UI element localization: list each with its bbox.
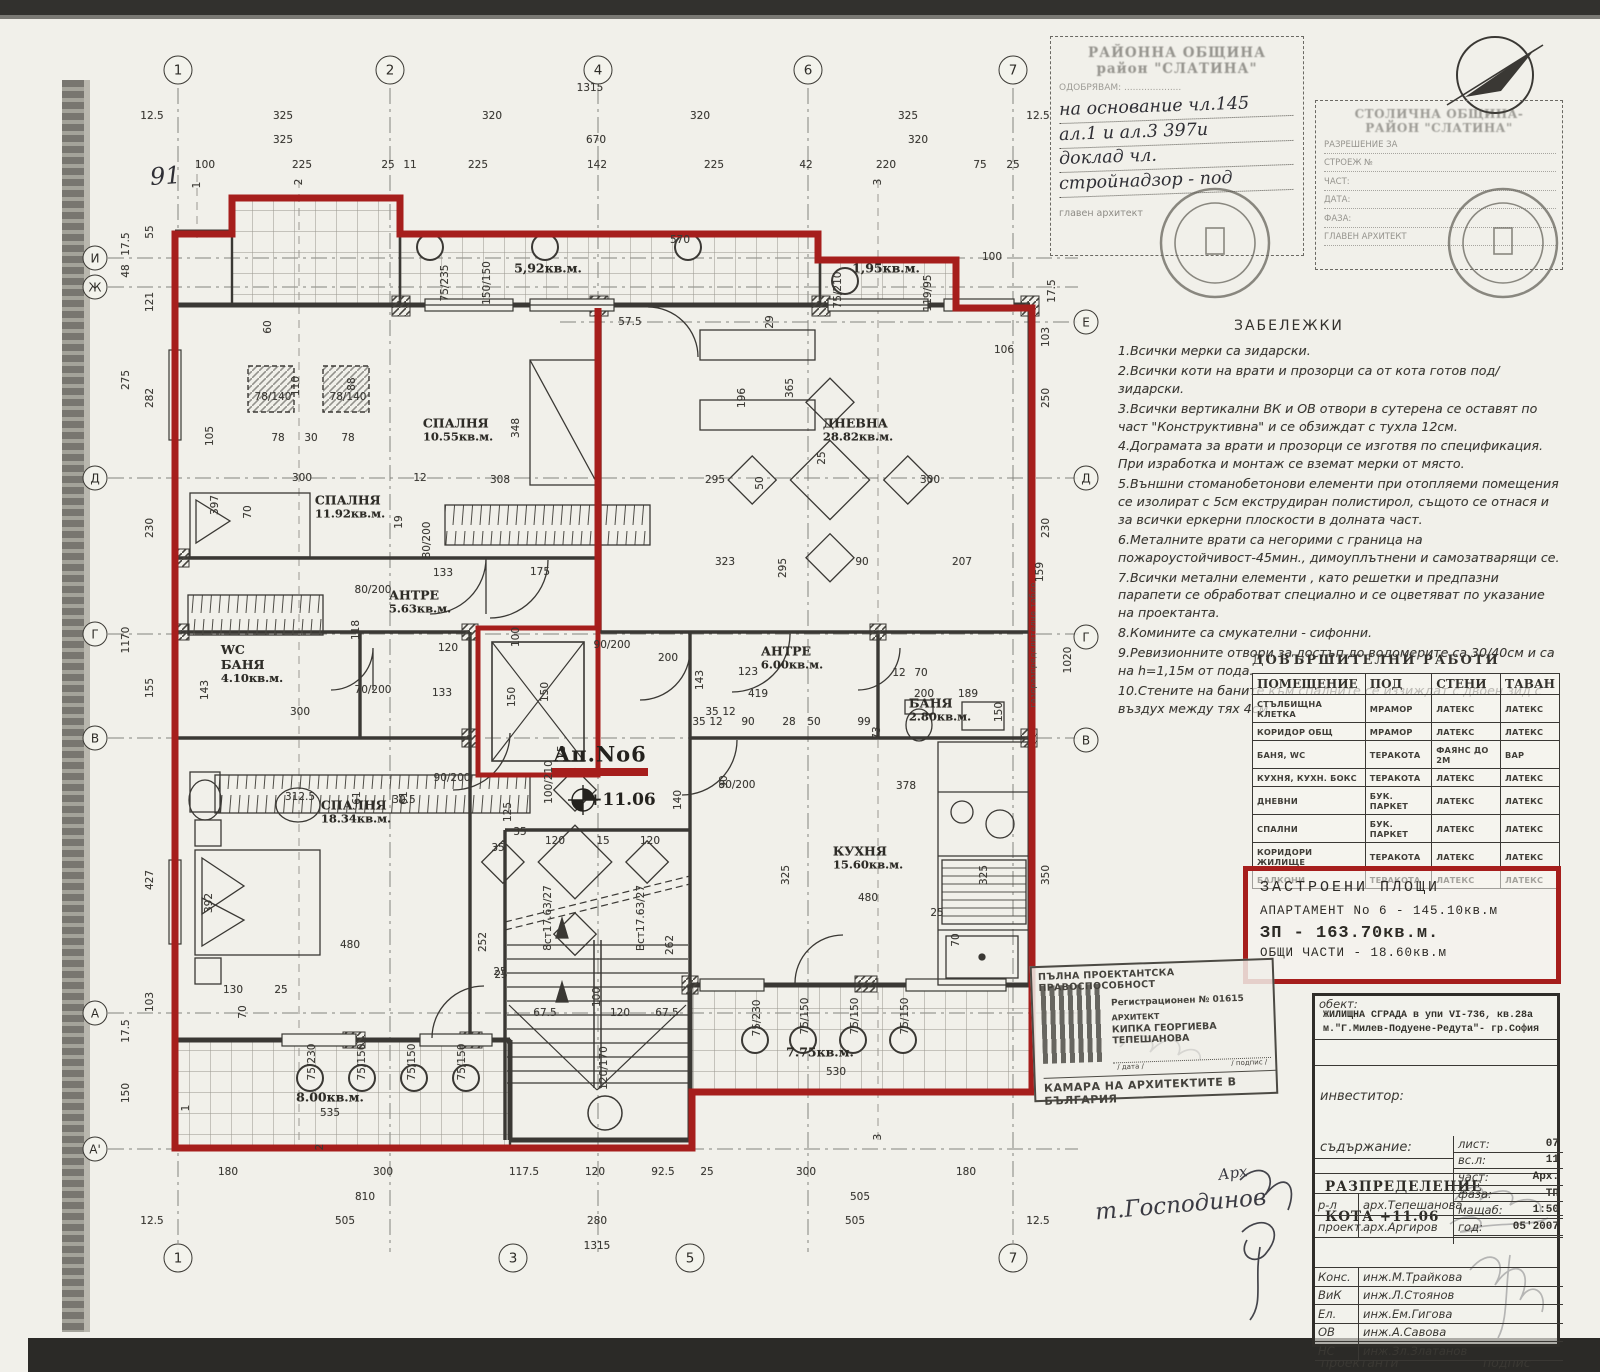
zp-area-line: ЗП - 163.70кв.м. <box>1260 924 1544 943</box>
dimension-label: 106 <box>994 345 1014 356</box>
finish-row: КОРИДОР ОБЩМРАМОРЛАТЕКСЛАТЕКС <box>1253 723 1560 741</box>
dimension-label: 50 <box>755 476 766 489</box>
axis-bubble-В: В <box>1074 728 1099 753</box>
room-label: СПАЛНЯ10.55кв.м. <box>423 416 493 445</box>
dimension-label: 15 <box>596 836 609 847</box>
finish-cell: ЛАТЕКС <box>1501 787 1560 815</box>
permit-field: ФАЗА: <box>1324 214 1556 228</box>
dimension-label: 78/140 <box>255 392 292 403</box>
dimension-label: 120 <box>438 643 458 654</box>
axis-bubble-Ж: Ж <box>83 275 108 300</box>
dimension-label: 30.5 <box>392 795 415 806</box>
dimension-label: 19 <box>394 515 405 528</box>
title-field-лист: лист:07 <box>1454 1136 1563 1153</box>
axis-bubble-В: В <box>83 726 108 751</box>
object-label: обект: <box>1319 997 1358 1011</box>
finishing-works-block: ДОВЪРШИТЕЛНИ РАБОТИ ПОМЕЩЕНИЕПОДСТЕНИТАВ… <box>1252 653 1560 889</box>
dimension-label: 25 <box>493 967 506 978</box>
room-label: СПАЛНЯ11.92кв.м. <box>315 493 385 522</box>
dimension-label: 75/150 <box>407 1044 418 1081</box>
dimension-label: 348 <box>511 418 522 438</box>
dimension-label: 100 <box>982 252 1002 263</box>
dimension-label: 308 <box>490 475 510 486</box>
dimension-label: 42 <box>799 160 812 171</box>
axis-bubble-А: А <box>83 1001 108 1026</box>
dimension-label: 150 <box>994 702 1005 722</box>
dimension-label: 75 <box>973 160 986 171</box>
finish-cell: ВАР <box>1501 741 1560 769</box>
finish-cell: ЛАТЕКС <box>1501 769 1560 787</box>
dimension-label: 117.5 <box>509 1167 539 1178</box>
dimension-label: 133 <box>433 568 453 579</box>
dimension-label: 225 <box>292 160 312 171</box>
dimension-label: 419 <box>748 689 768 700</box>
approval-handwritten-note: на основание чл.145ал.1 и ал.3 397идокла… <box>1059 95 1293 194</box>
dimension-label: 150 <box>540 682 551 702</box>
axis-bubble-Д: Д <box>1074 466 1099 491</box>
finish-cell: БУК. ПАРКЕТ <box>1365 815 1431 843</box>
dimension-label: 75/150 <box>457 1044 468 1081</box>
dimension-label: 99 <box>857 717 870 728</box>
drawing-sheet: 131512.532532032032512.53256703201002252… <box>0 0 1600 1372</box>
dimension-label: 225 <box>704 160 724 171</box>
dimension-label: 225 <box>468 160 488 171</box>
dimension-label: 142 <box>587 160 607 171</box>
finish-row: БАНЯ, WCТЕРАКОТАФАЯНС ДО 2МВАР <box>1253 741 1560 769</box>
dimension-label: 295 <box>705 475 725 486</box>
dimension-label: 155 <box>145 678 156 698</box>
dimension-label: 300 <box>920 475 940 486</box>
dimension-label: 143 <box>200 680 211 700</box>
dimension-label: 75/150 <box>850 998 861 1035</box>
note-item: 4.Дограмата за врати и прозорци се изгот… <box>1118 437 1564 473</box>
dimension-label: 300 <box>290 707 310 718</box>
kab-sign-label: / подпис / <box>1231 1058 1267 1067</box>
dimension-label: 123 <box>738 667 758 678</box>
dimension-label: 150 <box>121 1083 132 1103</box>
axis-bubble-7: 7 <box>999 1244 1028 1273</box>
dimension-label: 17.5 <box>121 1019 132 1042</box>
building-permit-stamp: СТОЛИЧНА ОБЩИНА- РАЙОН "СЛАТИНА" РАЗРЕШЕ… <box>1315 100 1563 270</box>
dimension-label: 150 <box>507 687 518 707</box>
dimension-label: 196 <box>737 388 748 408</box>
dimension-label: 118 <box>351 620 362 640</box>
axis-bubble-2: 2 <box>376 56 405 85</box>
finish-cell: КУХНЯ, КУХН. БОКС <box>1253 769 1366 787</box>
dimension-label: 92.5 <box>651 1167 674 1178</box>
dimension-label: 67.5 <box>655 1008 678 1019</box>
dimension-label: 12 <box>413 473 426 484</box>
areas-title: ЗАСТРОЕНИ ПЛОЩИ <box>1260 879 1544 896</box>
built-up-areas-box: ЗАСТРОЕНИ ПЛОЩИ АПАРТАМЕНТ No 6 - 145.10… <box>1243 866 1561 984</box>
dimension-label: 25 <box>274 985 287 996</box>
signer-row: р-ларх.Тепешанова <box>1315 1194 1563 1216</box>
dimension-label: 3 <box>873 179 884 186</box>
finish-col-header: ТАВАН <box>1501 674 1560 695</box>
finish-cell: БАНЯ, WC <box>1253 741 1366 769</box>
dimension-label: 120 <box>640 836 660 847</box>
finishing-works-title: ДОВЪРШИТЕЛНИ РАБОТИ <box>1252 653 1560 668</box>
dimension-label: 320 <box>908 135 928 146</box>
dimension-label: 90/200 <box>719 780 756 791</box>
finish-cell: ДНЕВНИ <box>1253 787 1366 815</box>
finish-cell: ЛАТЕКС <box>1432 787 1501 815</box>
room-label: 1,95кв.м. <box>852 261 920 276</box>
kab-line4: КИПКА ГЕОРГИЕВА ТЕПЕШАНОВА <box>1112 1019 1275 1047</box>
dimension-label: 207 <box>952 557 972 568</box>
dimension-label: 78 <box>341 433 354 444</box>
dimension-label: 90/200 <box>594 640 631 651</box>
permit-field: СТРОЕЖ № <box>1324 158 1556 172</box>
common-parts-line: ОБЩИ ЧАСТИ - 18.60кв.м <box>1260 946 1544 960</box>
finish-cell: СПАЛНИ <box>1253 815 1366 843</box>
dimension-label: 1315 <box>584 1241 611 1252</box>
dimension-label: 1020 <box>1063 647 1074 674</box>
dimension-label: газоразпределително табло <box>1029 582 1037 707</box>
title-field-всл: вс.л:11 <box>1454 1153 1563 1170</box>
signer-row: НСинж.Зл.Златанов <box>1315 1342 1563 1361</box>
notes-title: ЗАБЕЛЕЖКИ <box>1234 318 1564 334</box>
dimension-label: 70 <box>238 1005 249 1018</box>
finish-cell: ЛАТЕКС <box>1501 695 1560 723</box>
dimension-label: 397 <box>210 495 221 515</box>
dimension-label: 17.5 <box>1047 279 1058 302</box>
dimension-label: 230 <box>145 518 156 538</box>
dimension-label: 25 <box>381 160 394 171</box>
finish-cell: ЛАТЕКС <box>1432 815 1501 843</box>
title-block: обект: ЖИЛИЩНА СГРАДА в упи VI-736, кв.2… <box>1312 993 1560 1347</box>
dimension-label: 78/140 <box>330 392 367 403</box>
dimension-label: 25 <box>930 908 943 919</box>
dimension-label: 810 <box>355 1192 375 1203</box>
dimension-label: 505 <box>850 1192 870 1203</box>
dimension-label: 80/200 <box>355 585 392 596</box>
room-label: АНТРЕ5.63кв.м. <box>389 588 451 617</box>
approval-org-line1: РАЙОННА ОБЩИНА <box>1051 45 1303 61</box>
axis-bubble-6: 6 <box>794 56 823 85</box>
axis-bubble-Д: Д <box>83 466 108 491</box>
dimension-label: 320 <box>482 111 502 122</box>
dimension-label: 35 <box>513 827 526 838</box>
axis-bubble-7: 7 <box>999 56 1028 85</box>
dimension-label: 28 <box>782 717 795 728</box>
dimension-label: 1 <box>192 182 203 189</box>
dimension-label: 282 <box>145 388 156 408</box>
dimension-label: 57.5 <box>618 317 641 328</box>
dimension-label: 365 <box>785 378 796 398</box>
room-label: БАНЯ2.80кв.м. <box>909 696 971 725</box>
kab-line2: Регистрационен № 01615 <box>1111 993 1273 1009</box>
finish-cell: ЛАТЕКС <box>1432 723 1501 741</box>
dimension-label: 75/230 <box>752 1000 763 1037</box>
dimension-label: 103 <box>1041 327 1052 347</box>
signer-row: Ел.инж.Ем.Гигова <box>1315 1305 1563 1324</box>
finish-cell: МРАМОР <box>1365 695 1431 723</box>
dimension-label: 325 <box>273 111 293 122</box>
dimension-label: 90 <box>741 717 754 728</box>
object-line1: ЖИЛИЩНА СГРАДА в упи VI-736, кв.28а <box>1323 1010 1533 1021</box>
dimension-label: 88 <box>347 377 358 390</box>
note-item: 1.Всички мерки са зидарски. <box>1118 342 1564 360</box>
finish-cell: ЛАТЕКС <box>1501 815 1560 843</box>
dimension-label: 100/210 <box>544 760 555 804</box>
chief-architect-label: главен архитект <box>1059 208 1303 219</box>
dimension-label: 55 <box>145 225 156 238</box>
dimension-label: 35 <box>692 717 705 728</box>
finish-cell: ТЕРАКОТА <box>1365 769 1431 787</box>
kab-date-label: / дата / <box>1117 1062 1144 1071</box>
dimension-label: 12 <box>722 707 735 718</box>
dimension-label: 70 <box>243 505 254 518</box>
finish-col-header: СТЕНИ <box>1432 674 1501 695</box>
dimension-label: 300 <box>373 1167 393 1178</box>
room-label: ДНЕВНА28.82кв.м. <box>823 416 893 445</box>
axis-bubble-Г: Г <box>83 622 108 647</box>
dimension-label: 67.5 <box>533 1008 556 1019</box>
dimension-label: 12.5 <box>140 1216 163 1227</box>
dimension-label: 480 <box>340 940 360 951</box>
axis-bubble-Е: Е <box>1074 310 1099 335</box>
dimension-label: 12.5 <box>1026 1216 1049 1227</box>
dimension-label: 1 <box>181 1105 192 1112</box>
finish-row: СПАЛНИБУК. ПАРКЕТЛАТЕКСЛАТЕКС <box>1253 815 1560 843</box>
room-label: 5,92кв.м. <box>514 261 582 276</box>
dimension-label: 100 <box>195 160 215 171</box>
dimension-label: 325 <box>898 111 918 122</box>
dimension-label: 230 <box>1041 518 1052 538</box>
dimension-label: 12 <box>892 668 905 679</box>
dimension-label: 323 <box>715 557 735 568</box>
dimension-label: 1170 <box>121 627 132 654</box>
room-label: СПАЛНЯ18.34кв.м. <box>321 798 391 827</box>
dimension-label: 2 <box>294 179 305 186</box>
axis-bubble-1: 1 <box>164 1244 193 1273</box>
dimension-label: 70 <box>914 668 927 679</box>
dimension-label: 505 <box>335 1216 355 1227</box>
dimension-label: 50 <box>807 717 820 728</box>
permit-field: ДАТА: <box>1324 195 1556 209</box>
dimension-label: 378 <box>896 781 916 792</box>
dimension-label: 17.5 <box>121 232 132 255</box>
dimension-label: 670 <box>586 135 606 146</box>
permit-field: ЧАСТ: <box>1324 177 1556 191</box>
room-label: КУХНЯ15.60кв.м. <box>833 844 903 873</box>
dimension-label: 480 <box>858 893 878 904</box>
finish-cell: СТЪЛБИЩНА КЛЕТКА <box>1253 695 1366 723</box>
dimension-label: 35 <box>491 843 504 854</box>
note-item: 8.Комините са смукателни - сифонни. <box>1118 624 1564 642</box>
dimension-label: 103 <box>145 992 156 1012</box>
dimension-label: 121 <box>145 292 156 312</box>
finish-row: КУХНЯ, КУХН. БОКСТЕРАКОТАЛАТЕКСЛАТЕКС <box>1253 769 1560 787</box>
dimension-label: 73 <box>872 726 883 739</box>
dimension-label: 159 <box>1035 562 1046 582</box>
dimension-label: 295 <box>778 558 789 578</box>
finish-cell: КОРИДОР ОБЩ <box>1253 723 1366 741</box>
dimension-label: 3 <box>873 1134 884 1141</box>
axis-bubble-И: И <box>83 246 108 271</box>
dimension-label: 100 <box>511 627 522 647</box>
dimension-label: 25 <box>817 451 828 464</box>
dimension-label: 143 <box>695 670 706 690</box>
dimension-label: 505 <box>845 1216 865 1227</box>
finish-cell: ЛАТЕКС <box>1501 723 1560 741</box>
axis-bubble-5: 5 <box>676 1244 705 1273</box>
dimension-label: 280 <box>587 1216 607 1227</box>
dimension-label: 105 <box>205 426 216 446</box>
note-item: 2.Всички коти на врати и прозорци са от … <box>1118 362 1564 398</box>
dimension-label: 12.5 <box>1026 111 1049 122</box>
dimension-label: 80/200 <box>422 522 433 559</box>
dimension-label: 48 <box>121 264 132 277</box>
architect-chamber-stamp: ПЪЛНА ПРОЕКТАНТСКА ПРАВОСПОСОБНОСТ Регис… <box>1030 958 1279 1102</box>
dimension-label: 325 <box>273 135 293 146</box>
room-label: 8.00кв.м. <box>296 1090 364 1105</box>
permit-field: ГЛАВЕН АРХИТЕКТ <box>1324 232 1556 246</box>
dimension-label: 70 <box>951 933 962 946</box>
dimension-label: 392 <box>204 893 215 913</box>
municipality-approval-stamp: РАЙОННА ОБЩИНА район "СЛАТИНА" ОДОБРЯВАМ… <box>1050 36 1304 256</box>
finish-cell: ЛАТЕКС <box>1432 769 1501 787</box>
dimension-label: 325 <box>781 865 792 885</box>
dimension-label: 140 <box>673 790 684 810</box>
note-item: 6.Металните врати са негорими с граница … <box>1118 531 1564 567</box>
dimension-label: 275 <box>121 370 132 390</box>
dimension-label: 75/150 <box>800 998 811 1035</box>
signer-row: проект.арх.Аргиров <box>1315 1216 1563 1238</box>
axis-bubble-3: 3 <box>499 1244 528 1273</box>
dimension-label: 12.5 <box>140 111 163 122</box>
finish-cell: МРАМОР <box>1365 723 1431 741</box>
note-item: 5.Външни стоманобетонови елементи при от… <box>1118 475 1564 529</box>
dimension-label: 60 <box>263 320 274 333</box>
dimension-label: 300 <box>292 473 312 484</box>
dimension-label: 30 <box>304 433 317 444</box>
permit-number-handwritten: 91 <box>149 161 181 191</box>
dimension-label: 262 <box>665 935 676 955</box>
dimension-label: 75/210 <box>833 272 844 309</box>
dimension-label: 119/95 <box>923 275 934 312</box>
room-label: АНТРЕ6.00кв.м. <box>761 644 823 673</box>
dimension-label: 530 <box>826 1067 846 1078</box>
dimension-label: 133 <box>432 688 452 699</box>
dimension-label: 175 <box>530 567 550 578</box>
dimension-label: 150/150 <box>482 261 493 305</box>
finish-row: ДНЕВНИБУК. ПАРКЕТЛАТЕКСЛАТЕКС <box>1253 787 1560 815</box>
dimension-label: 312.5 <box>285 792 315 803</box>
dimension-label: 70/200 <box>355 685 392 696</box>
dimension-label: 75/230 <box>307 1044 318 1081</box>
dimension-label: 78 <box>271 433 284 444</box>
dimension-label: 180 <box>956 1167 976 1178</box>
finish-row: СТЪЛБИЩНА КЛЕТКАМРАМОРЛАТЕКСЛАТЕКС <box>1253 695 1560 723</box>
finish-col-header: ПОМЕЩЕНИЕ <box>1253 674 1366 695</box>
dimension-label: 325 <box>979 865 990 885</box>
axis-bubble-1: 1 <box>164 56 193 85</box>
dimension-label: 300 <box>796 1167 816 1178</box>
apartment-area-line: АПАРТАМЕНТ No 6 - 145.10кв.м <box>1260 904 1544 918</box>
permit-field: РАЗРЕШЕНИЕ ЗА <box>1324 140 1556 154</box>
dimension-label: 8ст17.63/27 <box>543 885 554 951</box>
dimension-label: 570 <box>670 235 690 246</box>
dimension-label: 12 <box>709 717 722 728</box>
note-item: 3.Всички вертикални ВК и ОВ отвори в сут… <box>1118 400 1564 436</box>
signer-row: ВиКинж.Л.Стоянов <box>1315 1287 1563 1306</box>
dimension-label: 200 <box>658 653 678 664</box>
note-item: 7.Всички метални елементи , като решетки… <box>1118 569 1564 623</box>
dimension-label: 125 <box>503 802 514 822</box>
dimension-label: 11 <box>403 160 416 171</box>
dimension-label: 120 <box>610 1008 630 1019</box>
dimension-label: 2 <box>315 1144 326 1151</box>
chamber-emblem-icon <box>1040 984 1105 1064</box>
dimension-label: 220 <box>876 160 896 171</box>
dimension-label: 120/170 <box>599 1046 610 1090</box>
dimension-label: 130 <box>223 985 243 996</box>
content-label: съдържание: <box>1320 1140 1412 1155</box>
dimension-label: 250 <box>1041 388 1052 408</box>
permit-org-line2: РАЙОН "СЛАТИНА" <box>1316 121 1562 135</box>
dimension-label: 25 <box>1006 160 1019 171</box>
signer-row: ОВинж.А.Савова <box>1315 1324 1563 1343</box>
dimension-label: 75/150 <box>900 998 911 1035</box>
approval-org-line2: район "СЛАТИНА" <box>1051 61 1303 77</box>
room-label: WCБАНЯ4.10кв.м. <box>221 642 283 686</box>
axis-bubble-4: 4 <box>584 56 613 85</box>
dimension-label: 180 <box>218 1167 238 1178</box>
finish-cell: ТЕРАКОТА <box>1365 741 1431 769</box>
permit-org-line1: СТОЛИЧНА ОБЩИНА- <box>1316 107 1562 121</box>
dimension-label: 90 <box>855 557 868 568</box>
finish-cell: ФАЯНС ДО 2М <box>1432 741 1501 769</box>
dimension-label: 90/200 <box>434 773 471 784</box>
finish-col-header: ПОД <box>1365 674 1431 695</box>
dimension-label: 320 <box>690 111 710 122</box>
apartment-number-label: Ап.No6 <box>553 742 647 767</box>
dimension-label: 25 <box>700 1167 713 1178</box>
dimension-label: 427 <box>145 870 156 890</box>
dimension-label: 252 <box>478 932 489 952</box>
dimension-label: 75/150 <box>357 1044 368 1081</box>
dimension-label: 75/235 <box>440 265 451 302</box>
object-line2: м."Г.Милев-Подуене-Редута"- гр.София <box>1323 1024 1539 1035</box>
dimension-label: 350 <box>1041 865 1052 885</box>
dimension-label: 110 <box>291 376 302 396</box>
dimension-label: Вст17.63/27 <box>636 885 647 951</box>
room-label: 7.75кв.м. <box>786 1045 854 1060</box>
axis-bubble-Г: Г <box>1074 625 1099 650</box>
axis-bubble-А': А' <box>83 1137 108 1162</box>
dimension-label: 100 <box>592 987 603 1007</box>
dimension-label: 535 <box>320 1108 340 1119</box>
dimension-label: 120 <box>545 836 565 847</box>
finish-cell: ЛАТЕКС <box>1432 695 1501 723</box>
dimension-label: 120 <box>585 1167 605 1178</box>
signer-row: Конс.инж.М.Трайкова <box>1315 1268 1563 1287</box>
finish-cell: БУК. ПАРКЕТ <box>1365 787 1431 815</box>
level-elevation-label: +11.06 <box>588 790 655 810</box>
finishing-works-table: ПОМЕЩЕНИЕПОДСТЕНИТАВАН СТЪЛБИЩНА КЛЕТКАМ… <box>1252 673 1560 889</box>
dimension-label: 29 <box>765 315 776 328</box>
